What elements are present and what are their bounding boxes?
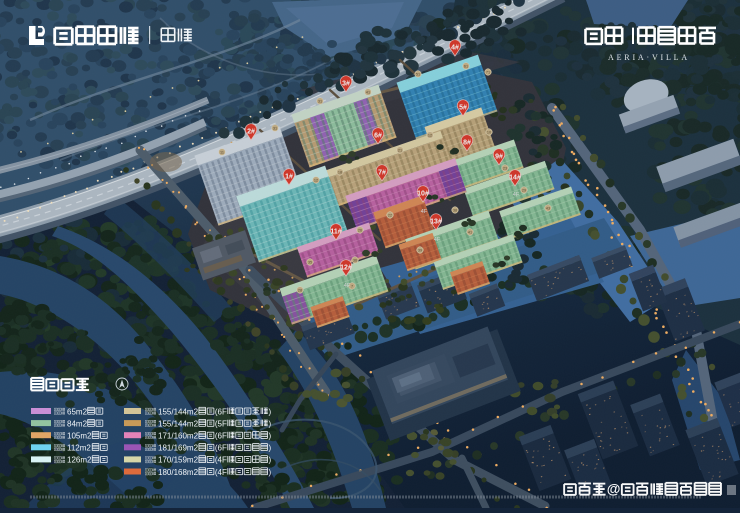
- svg-text:AERIA·VILLA: AERIA·VILLA: [608, 53, 690, 62]
- svg-text:170/159m2: 170/159m2: [158, 456, 199, 465]
- svg-text:105m2: 105m2: [67, 432, 92, 441]
- svg-text:): ): [269, 419, 272, 428]
- svg-text:(4F: (4F: [215, 468, 227, 477]
- svg-text:84m2: 84m2: [67, 419, 88, 428]
- svg-text:(5F: (5F: [215, 419, 227, 428]
- svg-text:112m2: 112m2: [67, 444, 91, 453]
- svg-text:(6F: (6F: [215, 444, 227, 453]
- svg-text:): ): [269, 456, 272, 465]
- svg-text:155/144m2: 155/144m2: [158, 419, 199, 428]
- svg-text:155/144m2: 155/144m2: [158, 407, 199, 416]
- svg-text:(4F: (4F: [215, 456, 227, 465]
- svg-text:): ): [269, 407, 272, 416]
- svg-text:(6F: (6F: [215, 432, 227, 441]
- svg-text:65m2: 65m2: [67, 407, 88, 416]
- svg-text:@: @: [607, 481, 621, 497]
- svg-text:(6F: (6F: [215, 407, 227, 416]
- svg-text:126m2: 126m2: [67, 456, 92, 465]
- svg-text:): ): [269, 432, 272, 441]
- svg-text:180/168m2: 180/168m2: [158, 468, 199, 477]
- svg-text:181/169m2: 181/169m2: [158, 444, 199, 453]
- svg-text:): ): [269, 444, 272, 453]
- svg-text:171/160m2: 171/160m2: [158, 432, 199, 441]
- svg-text:): ): [269, 468, 272, 477]
